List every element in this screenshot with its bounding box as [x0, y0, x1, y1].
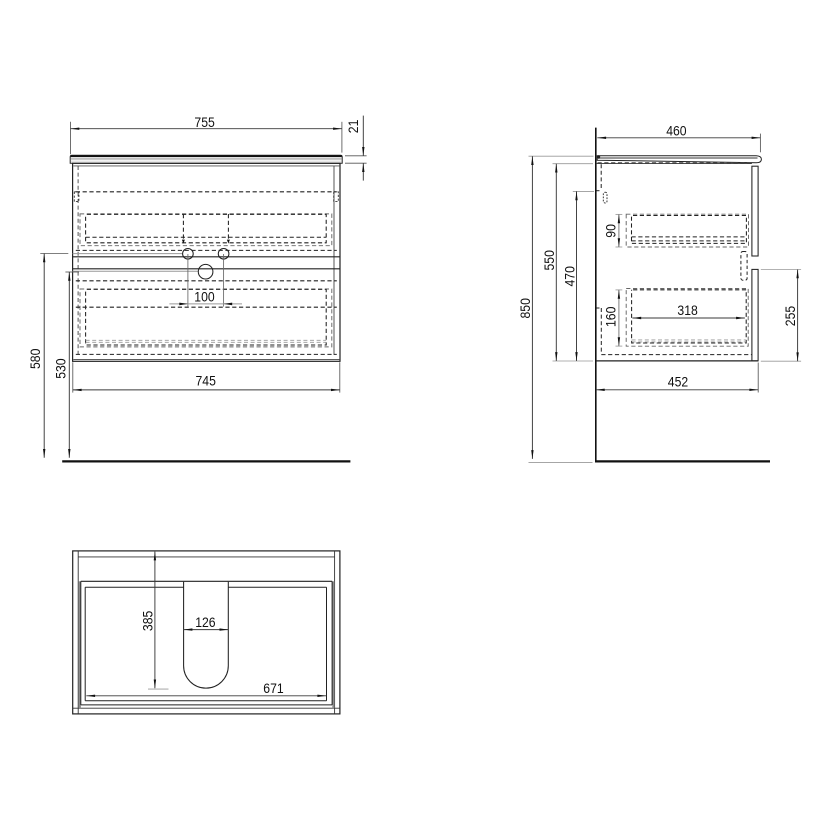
svg-text:580: 580 — [28, 348, 43, 369]
svg-text:385: 385 — [141, 610, 156, 631]
svg-text:745: 745 — [196, 373, 217, 388]
svg-text:90: 90 — [604, 224, 619, 238]
svg-text:460: 460 — [666, 124, 687, 139]
svg-text:850: 850 — [518, 298, 533, 319]
svg-text:470: 470 — [563, 266, 578, 287]
svg-text:671: 671 — [263, 681, 283, 696]
svg-text:126: 126 — [195, 615, 216, 630]
svg-text:21: 21 — [346, 120, 361, 134]
svg-text:755: 755 — [194, 115, 215, 130]
svg-text:100: 100 — [194, 290, 215, 305]
svg-text:160: 160 — [603, 306, 618, 327]
svg-text:318: 318 — [677, 303, 698, 318]
svg-text:550: 550 — [542, 250, 557, 271]
svg-text:530: 530 — [54, 358, 69, 379]
svg-text:452: 452 — [668, 375, 688, 390]
svg-text:255: 255 — [783, 306, 798, 327]
